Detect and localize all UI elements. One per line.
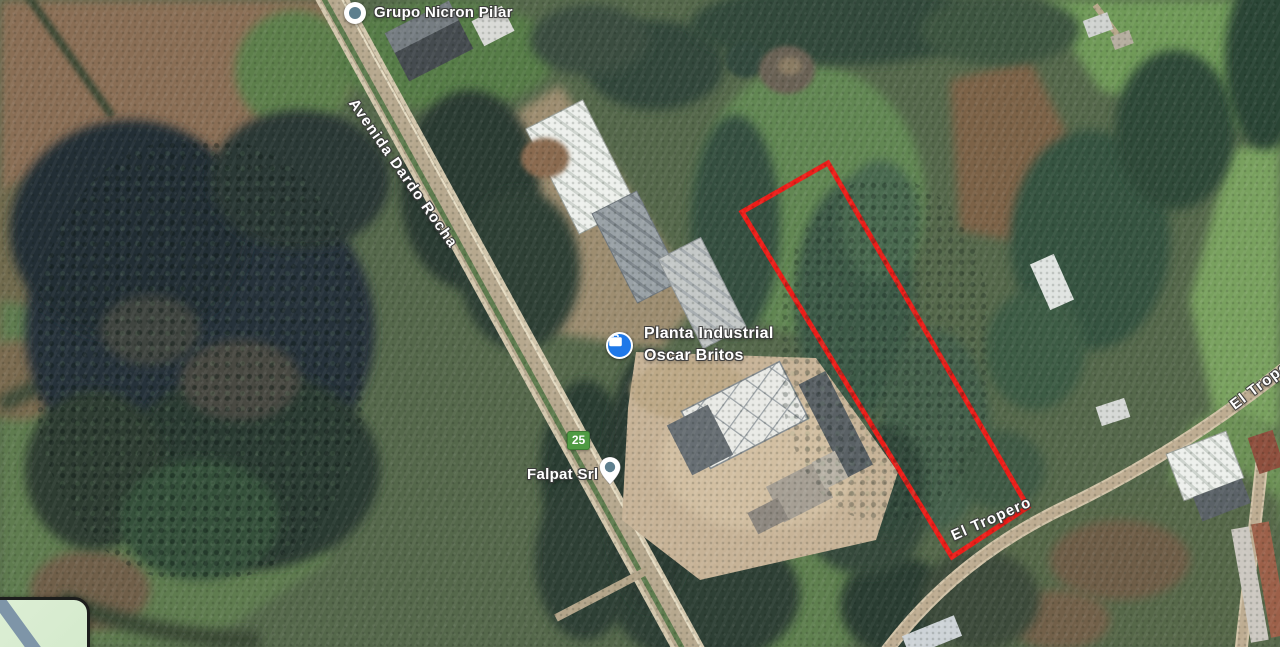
terrain-layer (0, 0, 1280, 647)
inset-road (0, 597, 80, 647)
poi-label-line1: Planta Industrial (644, 323, 774, 345)
inset-map (0, 597, 90, 647)
route-25-badge: 25 (567, 431, 590, 450)
pond (759, 46, 815, 94)
poi-label-planta-industrial[interactable]: Planta Industrial Oscar Britos (644, 323, 774, 367)
poi-label-grupo-nicron[interactable]: Grupo Nicron Pilar (374, 4, 513, 21)
poi-label-falpat[interactable]: Falpat Srl (527, 466, 598, 483)
poi-marker-falpat[interactable] (598, 456, 622, 486)
briefcase-icon (608, 334, 623, 348)
poi-label-line2: Oscar Britos (644, 345, 774, 367)
pin-icon (598, 456, 622, 486)
poi-marker-planta-industrial[interactable] (606, 332, 633, 359)
poi-marker-grupo-nicron[interactable] (344, 2, 366, 24)
satellite-map-canvas[interactable]: Grupo Nicron Pilar Avenida Dardo Rocha P… (0, 0, 1280, 647)
